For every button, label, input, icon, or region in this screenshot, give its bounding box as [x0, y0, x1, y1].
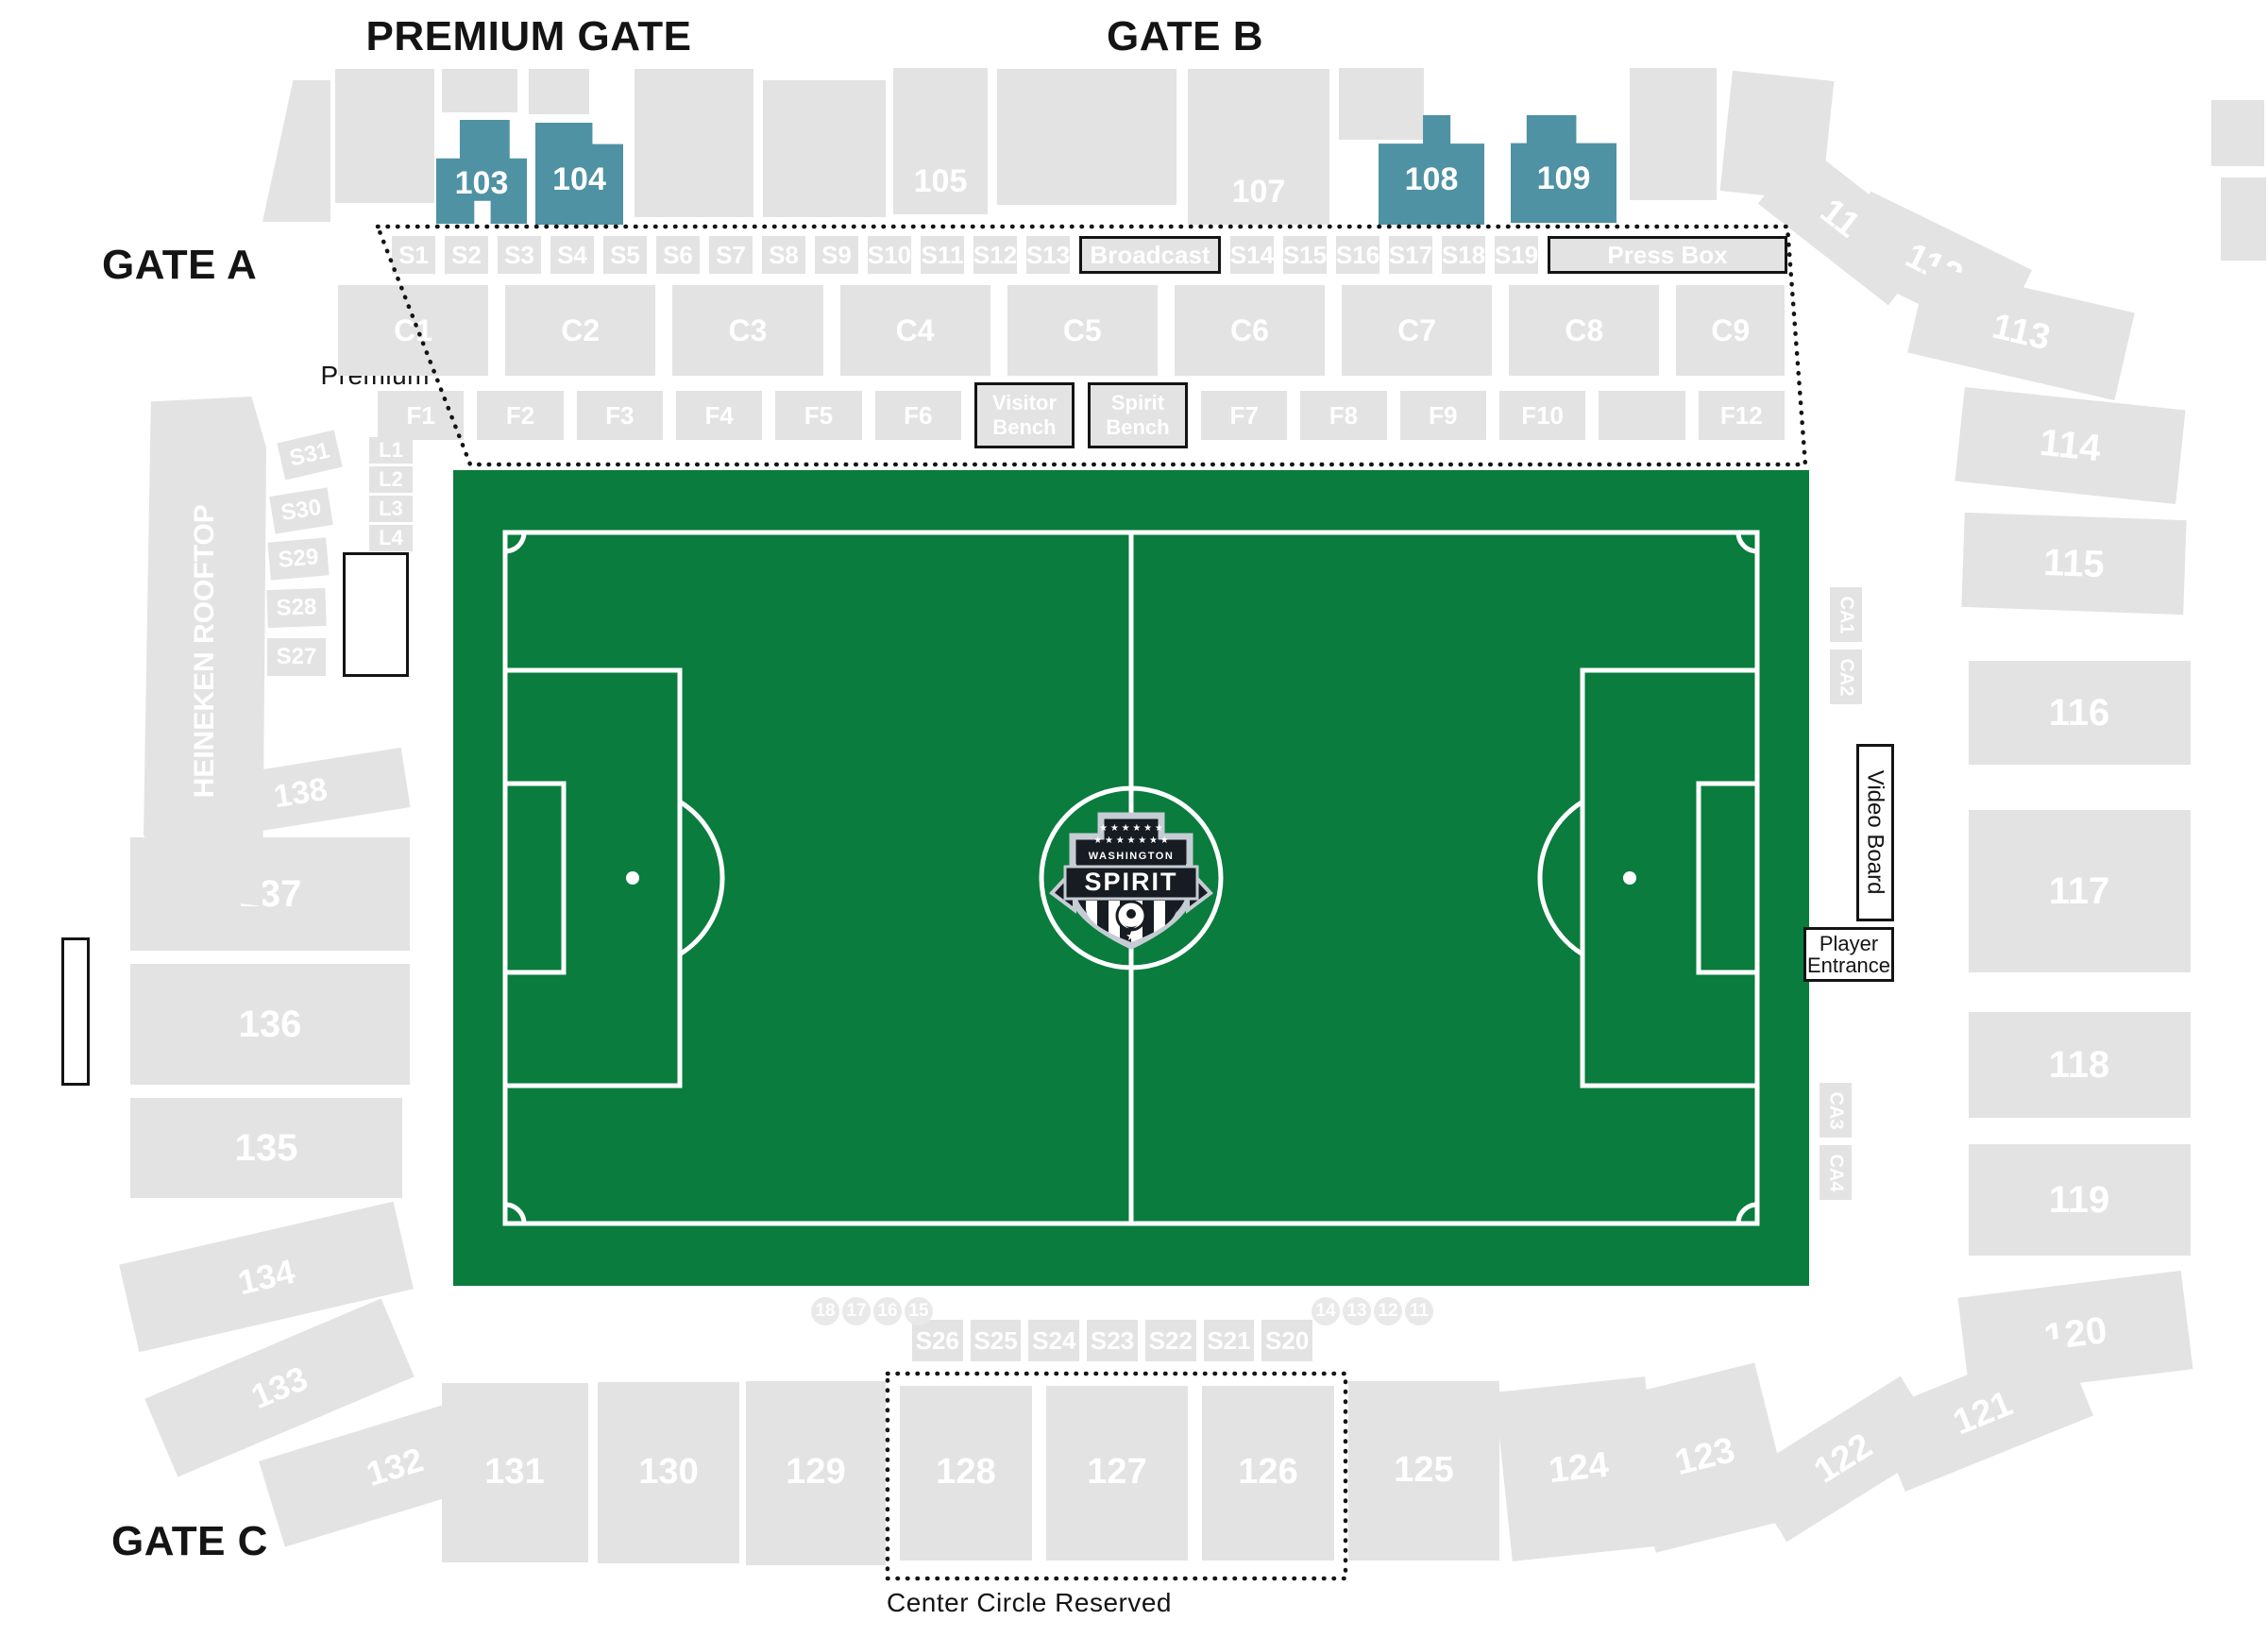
player-entrance-text: Player [1819, 933, 1878, 954]
section-131: 131 [442, 1383, 588, 1562]
section-CA2: CA2 [1830, 650, 1862, 704]
suite-block [2221, 177, 2266, 261]
section-130: 130 [598, 1382, 739, 1563]
field-f-row: F1F2F3F4F5F6VisitorBenchSpiritBenchF7F8F… [378, 391, 1785, 440]
section-F1: F1 [378, 391, 464, 440]
structure-box [61, 937, 90, 1086]
premium-gate-label: PREMIUM GATE [312, 13, 746, 60]
field-box-number: 15 [905, 1297, 933, 1325]
field-box-number: 18 [811, 1297, 839, 1325]
soccer-field: ★ ★ ★ ★ ★ ★ ★ ★ ★ ★ ★ ★ ★ WASHINGTON SPI… [453, 470, 1809, 1286]
section-S17: S17 [1389, 236, 1432, 274]
heineken-rooftop-section-text: HEINEKEN ROOFTOP [190, 504, 220, 798]
section-C2: C2 [505, 285, 655, 376]
suite-block [262, 80, 330, 222]
logo-city-text: WASHINGTON [1089, 851, 1175, 862]
section-126: 126 [1202, 1386, 1334, 1561]
section-L1: L1 [369, 437, 413, 464]
section-CA1-text: CA1 [1836, 596, 1856, 633]
section-105: 105 [893, 68, 988, 214]
structure-box [343, 552, 409, 677]
section-129: 129 [746, 1381, 886, 1565]
section-CA4: CA4 [1819, 1145, 1852, 1200]
section-F4: F4 [676, 391, 762, 440]
star-row-icon: ★ ★ ★ ★ ★ ★ [1099, 823, 1163, 834]
section-S23: S23 [1087, 1320, 1138, 1361]
section-116: 116 [1969, 661, 2191, 765]
gate-a-label: GATE A [102, 242, 257, 289]
section-104[interactable]: 104 [535, 123, 623, 225]
section-S3: S3 [498, 236, 541, 274]
video-board-label-text: Video Board [1863, 770, 1887, 895]
section-CA2-text: CA2 [1836, 658, 1856, 696]
section-L4: L4 [369, 525, 413, 551]
section-C9: C9 [1676, 285, 1785, 376]
suite-block [335, 69, 434, 203]
section-C7: C7 [1342, 285, 1492, 376]
section-C4: C4 [840, 285, 990, 376]
section-S13: S13 [1026, 236, 1070, 274]
suite-block [442, 69, 517, 112]
visitor-bench-box: VisitorBench [974, 382, 1075, 448]
section-117: 117 [1969, 810, 2191, 972]
stadium-seat-map: PREMIUM GATE GATE B GATE A GATE C Premiu… [0, 0, 2268, 1637]
suite-block [763, 80, 886, 217]
section-CA3-text: CA3 [1826, 1091, 1846, 1129]
video-board-label: Video Board [1856, 744, 1894, 921]
section-C5: C5 [1007, 285, 1158, 376]
section-107: 107 [1188, 69, 1329, 225]
spirit-bench-box: SpiritBench [1088, 382, 1188, 448]
section-CA1: CA1 [1830, 587, 1862, 642]
section-S25: S25 [971, 1320, 1022, 1361]
section-S30: S30 [269, 487, 332, 533]
gate-b-label: GATE B [1048, 13, 1322, 60]
spirit-bench-text: Bench [1106, 415, 1169, 440]
section-C6: C6 [1175, 285, 1325, 376]
section-S28: S28 [266, 588, 326, 628]
logo-team-text: SPIRIT [1084, 868, 1177, 896]
section-CA4-text: CA4 [1826, 1154, 1846, 1191]
suite-block [635, 69, 753, 217]
section-C8: C8 [1509, 285, 1659, 376]
section-127: 127 [1046, 1386, 1188, 1561]
section-119: 119 [1969, 1144, 2191, 1256]
section-118: 118 [1969, 1012, 2191, 1118]
section-S14: S14 [1230, 236, 1274, 274]
section-135: 135 [130, 1098, 402, 1198]
section-S24: S24 [1028, 1320, 1079, 1361]
field-box-number: 17 [842, 1297, 871, 1325]
section-103[interactable]: 103 [436, 120, 527, 224]
section-115: 115 [1961, 513, 2186, 615]
gate-c-label: GATE C [111, 1518, 268, 1565]
section-S12: S12 [973, 236, 1017, 274]
section-S7: S7 [709, 236, 753, 274]
section-F12: F12 [1699, 391, 1785, 440]
section-S16: S16 [1336, 236, 1379, 274]
section-S19: S19 [1495, 236, 1538, 274]
section-C3: C3 [672, 285, 822, 376]
visitor-bench-text: Visitor [992, 391, 1057, 415]
section-S22: S22 [1145, 1320, 1196, 1361]
section-S31: S31 [277, 430, 342, 481]
club-c-row: C1C2C3C4C5C6C7C8C9 [338, 285, 1785, 376]
section-F10: F10 [1499, 391, 1585, 440]
section-S26: S26 [912, 1320, 963, 1361]
section-128: 128 [900, 1386, 1032, 1561]
field-box-number: 11 [1405, 1297, 1433, 1325]
section-F7: F7 [1201, 391, 1287, 440]
suite-block [1339, 68, 1424, 140]
section-S5: S5 [603, 236, 647, 274]
visitor-bench-text: Bench [992, 415, 1056, 440]
section-S18: S18 [1442, 236, 1485, 274]
section-F3: F3 [577, 391, 663, 440]
section-F2: F2 [477, 391, 563, 440]
section-S2: S2 [445, 236, 488, 274]
section-F5: F5 [775, 391, 861, 440]
suite-block [1630, 68, 1717, 200]
section-S10: S10 [868, 236, 911, 274]
section-136: 136 [130, 964, 410, 1085]
center-circle-reserved-label: Center Circle Reserved [831, 1588, 1227, 1618]
section-F9: F9 [1400, 391, 1486, 440]
spirit-bench-text: Spirit [1111, 391, 1164, 415]
section-L2: L2 [369, 466, 413, 493]
suite-block [2211, 100, 2264, 166]
section-CA3: CA3 [1819, 1083, 1852, 1138]
star-icon: ★ [1126, 929, 1137, 943]
section-S15: S15 [1283, 236, 1327, 274]
field-box-number: 13 [1343, 1297, 1371, 1325]
section-S29: S29 [267, 537, 329, 580]
star-row-icon: ★ ★ ★ ★ ★ ★ ★ [1093, 835, 1168, 846]
suite-block [997, 69, 1176, 205]
section-S9: S9 [815, 236, 858, 274]
section-S21: S21 [1204, 1320, 1255, 1361]
section-S6: S6 [656, 236, 700, 274]
section-S11: S11 [921, 236, 964, 274]
field-box-number: 14 [1312, 1297, 1340, 1325]
washington-spirit-logo: ★ ★ ★ ★ ★ ★ ★ ★ ★ ★ ★ ★ ★ WASHINGTON SPI… [1052, 816, 1210, 946]
section-S27: S27 [267, 638, 326, 676]
field-box-number: 16 [873, 1297, 902, 1325]
section-F8: F8 [1300, 391, 1386, 440]
player-entrance-label: PlayerEntrance [1803, 927, 1894, 982]
section-S20: S20 [1261, 1320, 1312, 1361]
press-box: Press Box [1548, 236, 1787, 274]
section-C1: C1 [338, 285, 488, 376]
bottom-s-row: S26S25S24S23S22S21S20 [912, 1320, 1312, 1361]
heineken-rooftop-section: HEINEKEN ROOFTOP [144, 397, 266, 906]
section-114: 114 [1955, 387, 2185, 504]
section-S1: S1 [392, 236, 435, 274]
broadcast-box: Broadcast [1079, 236, 1221, 274]
player-entrance-text: Entrance [1807, 954, 1890, 976]
field-box-number: 12 [1374, 1297, 1402, 1325]
section-F6: F6 [875, 391, 961, 440]
section-125: 125 [1348, 1381, 1499, 1561]
suite-s-row: S1S2S3S4S5S6S7S8S9S10S11S12S13BroadcastS… [392, 236, 1787, 274]
section-L3: L3 [369, 496, 413, 522]
section-f11 [1599, 391, 1684, 440]
pitch-markings: ★ ★ ★ ★ ★ ★ ★ ★ ★ ★ ★ ★ ★ WASHINGTON SPI… [453, 470, 1809, 1286]
section-109[interactable]: 109 [1511, 115, 1616, 223]
section-S8: S8 [762, 236, 805, 274]
suite-block [529, 69, 589, 114]
section-S4: S4 [550, 236, 594, 274]
